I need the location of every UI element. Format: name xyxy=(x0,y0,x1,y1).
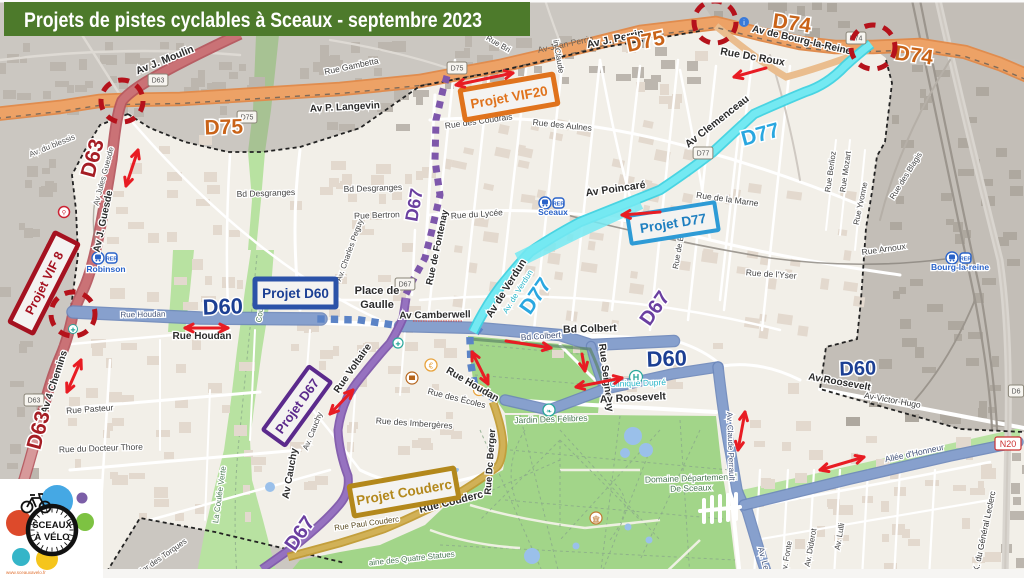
svg-text:D63: D63 xyxy=(28,398,41,405)
svg-text:Bourg-la-reine: Bourg-la-reine xyxy=(931,262,989,272)
svg-text:Av Camberwell: Av Camberwell xyxy=(399,309,471,321)
svg-text:À VÉLO: À VÉLO xyxy=(34,532,69,543)
svg-text:Projets de pistes cyclables à: Projets de pistes cyclables à Sceaux - s… xyxy=(24,9,482,32)
svg-text:Rue Houdan: Rue Houdan xyxy=(173,331,232,342)
svg-text:www.sceauxavelo.fr: www.sceauxavelo.fr xyxy=(6,570,46,575)
svg-text:Rue Bertron: Rue Bertron xyxy=(354,209,400,221)
svg-text:Bd Desgranges: Bd Desgranges xyxy=(343,182,402,194)
svg-text:De Sceaux: De Sceaux xyxy=(670,482,713,493)
svg-text:N20: N20 xyxy=(1000,439,1017,449)
svg-text:✚: ✚ xyxy=(70,327,75,334)
svg-text:D77: D77 xyxy=(697,151,710,158)
svg-text:Bd Colbert: Bd Colbert xyxy=(563,322,618,336)
svg-text:Gaulle: Gaulle xyxy=(360,299,394,311)
svg-text:D63: D63 xyxy=(152,78,165,85)
svg-text:⚲: ⚲ xyxy=(62,210,66,217)
svg-text:Place de: Place de xyxy=(355,285,400,297)
svg-text:Projet D60: Projet D60 xyxy=(262,286,329,301)
svg-text:Robinson: Robinson xyxy=(86,264,125,274)
svg-text:SCEAUX: SCEAUX xyxy=(32,520,72,531)
svg-text:✚: ✚ xyxy=(395,341,400,348)
svg-text:🏛: 🏛 xyxy=(592,516,601,524)
svg-text:D60: D60 xyxy=(202,293,243,319)
svg-text:D75: D75 xyxy=(451,66,464,73)
svg-text:Bd Desgranges: Bd Desgranges xyxy=(236,187,295,199)
svg-text:€: € xyxy=(429,362,434,371)
svg-text:Rue Houdan: Rue Houdan xyxy=(120,310,165,320)
svg-text:RER: RER xyxy=(106,257,118,263)
svg-text:D60: D60 xyxy=(839,357,876,380)
svg-text:D75: D75 xyxy=(204,115,244,139)
svg-text:Sceaux: Sceaux xyxy=(538,207,568,217)
svg-text:D67: D67 xyxy=(399,282,412,289)
svg-text:D6: D6 xyxy=(1012,389,1021,396)
svg-text:D60: D60 xyxy=(646,345,687,371)
